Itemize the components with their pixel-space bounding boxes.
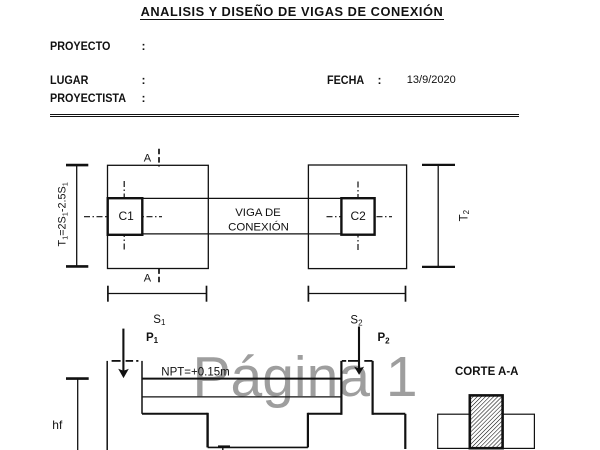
svg-text:S1: S1 — [153, 314, 166, 327]
svg-text:hf: hf — [52, 418, 63, 432]
svg-text:NPT=+0.15m: NPT=+0.15m — [161, 366, 229, 378]
svg-text:VIGA DE: VIGA DE — [235, 207, 281, 219]
svg-text:S2: S2 — [350, 314, 363, 327]
svg-text:P1: P1 — [146, 332, 159, 345]
svg-text:A: A — [144, 272, 152, 284]
svg-text:T2: T2 — [458, 209, 471, 221]
svg-text:CORTE A-A: CORTE A-A — [455, 366, 518, 378]
svg-text:CONEXIÓN: CONEXIÓN — [228, 220, 289, 233]
svg-text:A: A — [144, 152, 152, 164]
svg-text:C2: C2 — [351, 209, 367, 223]
svg-text:P2: P2 — [378, 332, 391, 345]
svg-text:C1: C1 — [119, 209, 135, 223]
svg-text:T1=2S1-2.5S1: T1=2S1-2.5S1 — [57, 182, 70, 246]
